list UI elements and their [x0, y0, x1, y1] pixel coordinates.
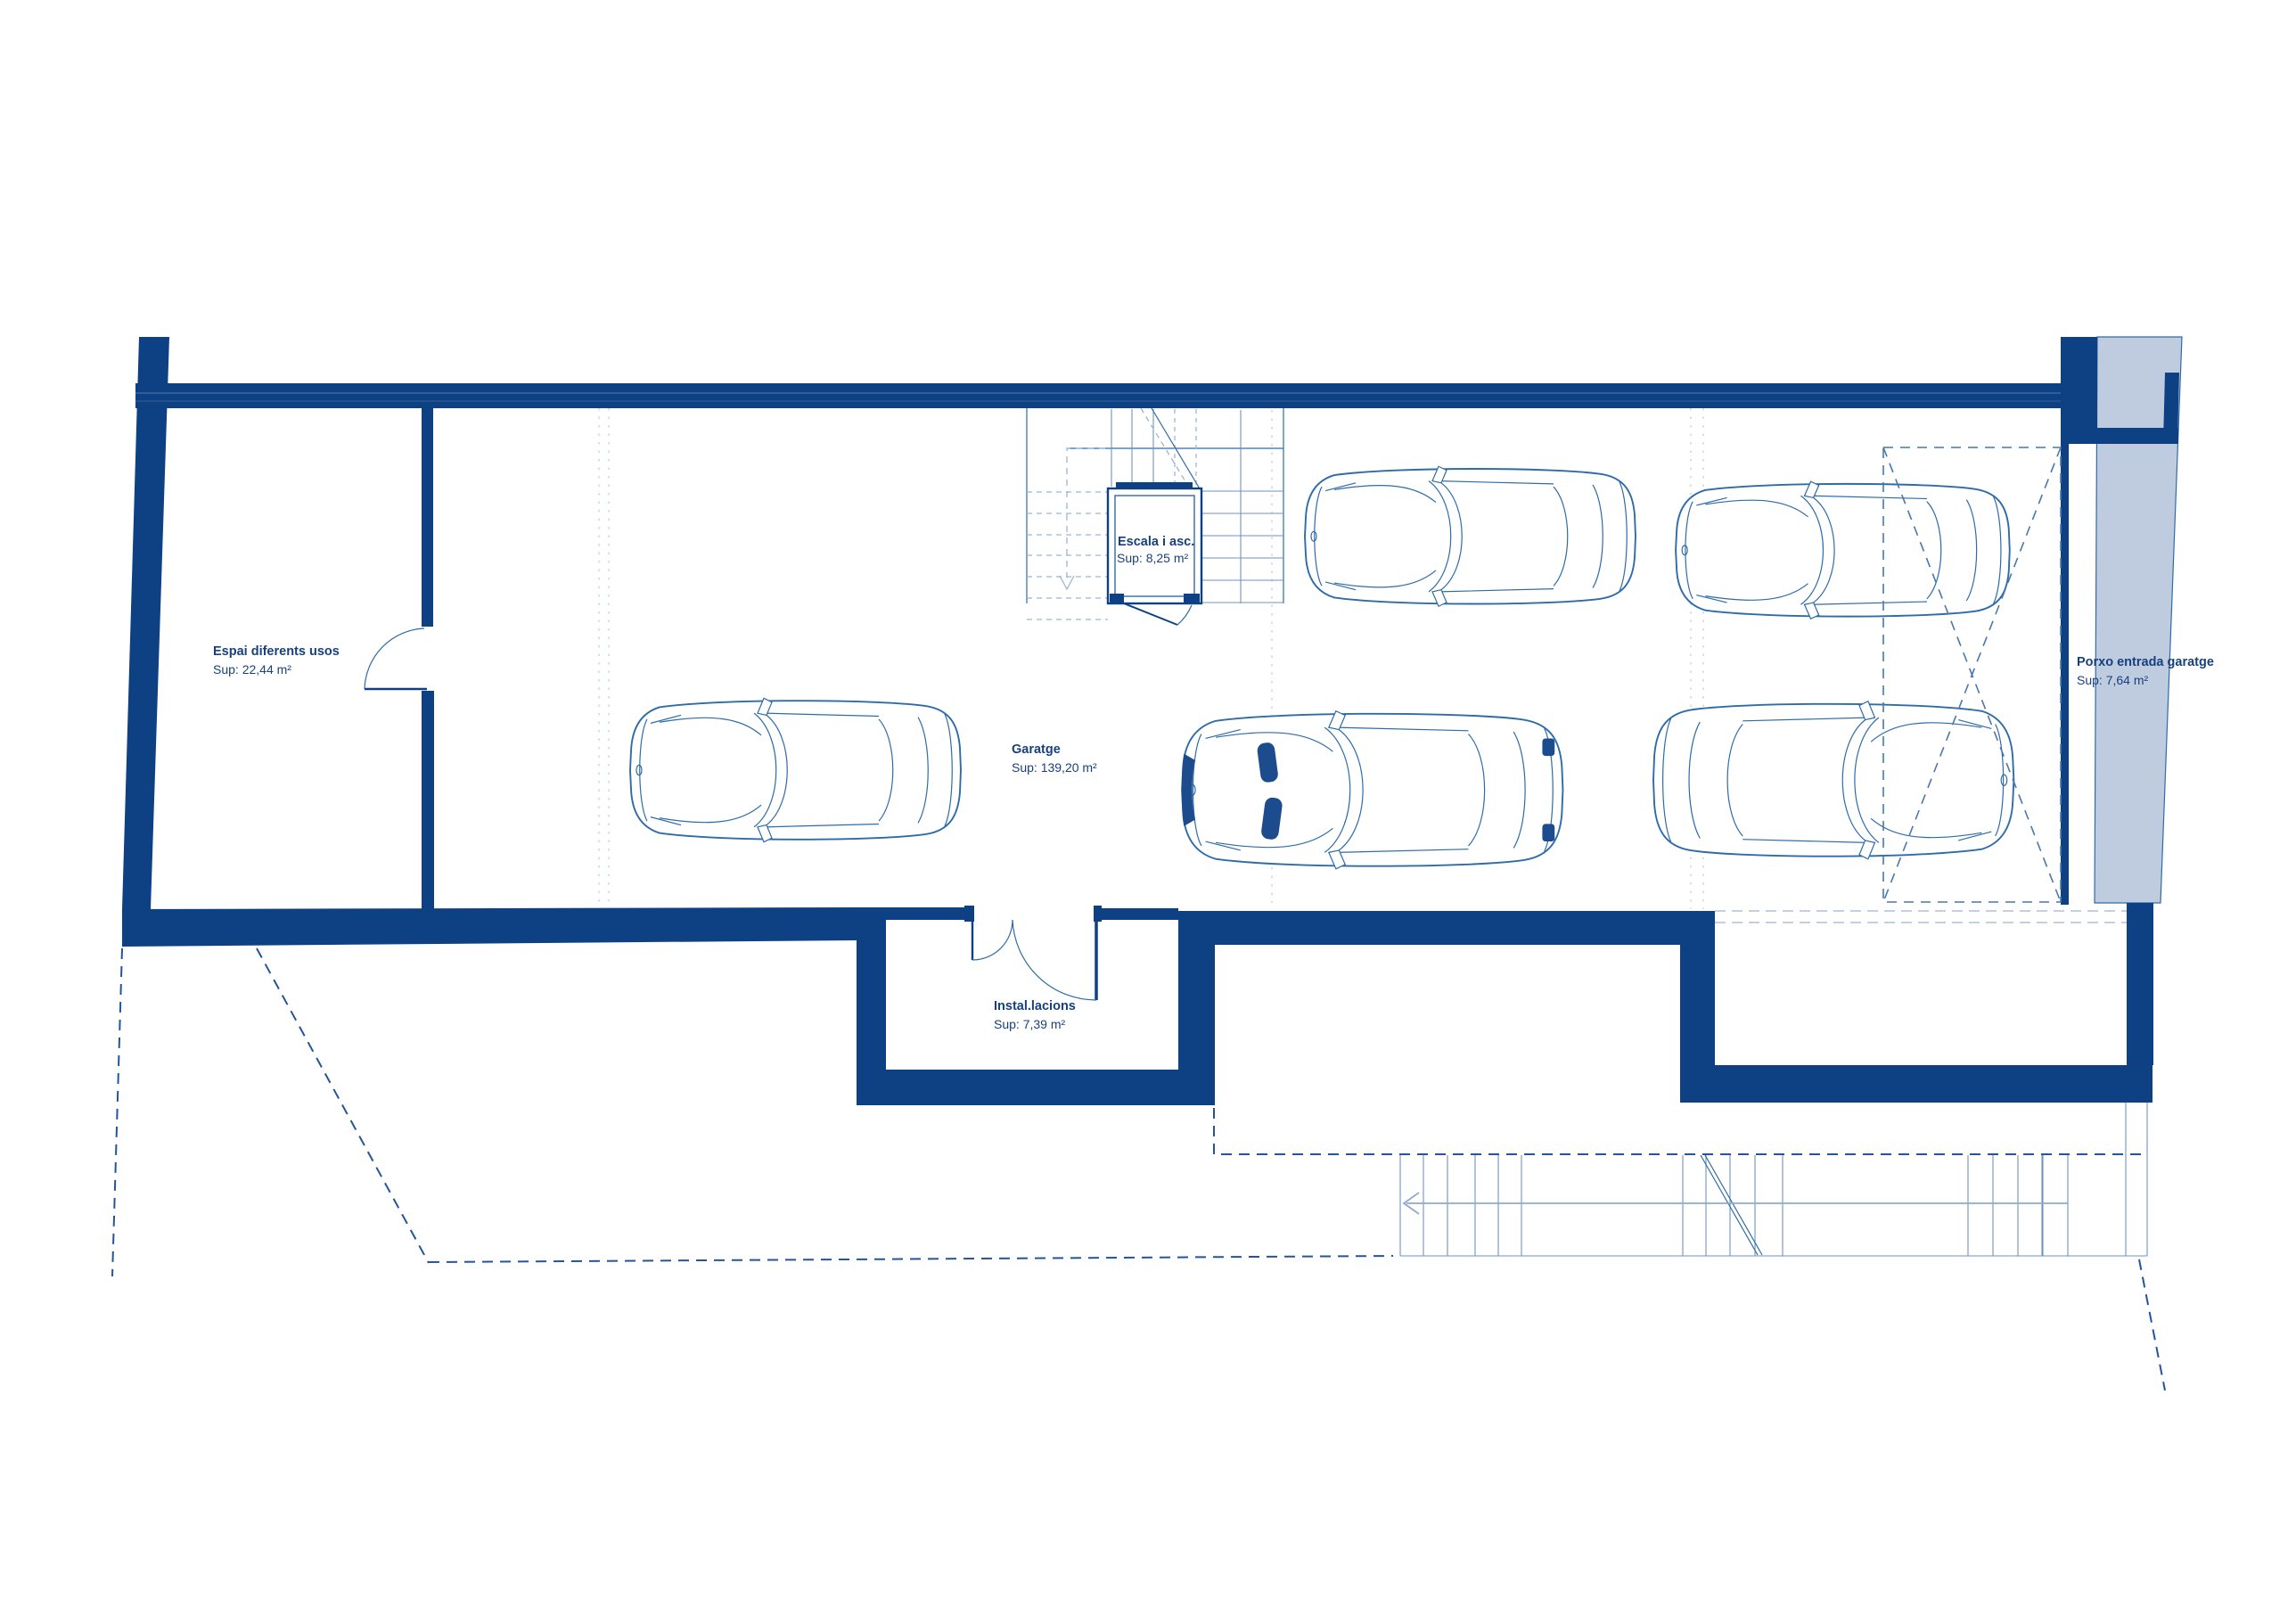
bottom-wall-left	[122, 907, 857, 947]
room-name-porxo: Porxo entrada garatge	[2077, 655, 2214, 669]
car-top-view-1	[1305, 466, 1636, 606]
room-name-espai: Espai diferents usos	[213, 644, 340, 659]
car-top-view-4	[1182, 711, 1563, 869]
floor-plan-canvas: Espai diferents usos Sup: 22,44 m² Escal…	[0, 0, 2296, 1624]
entrance-ramp-steps	[1400, 1103, 2147, 1256]
right-wall-thin	[2061, 444, 2069, 905]
car-top-view-3	[630, 698, 961, 841]
partition-espai-upper	[422, 408, 433, 627]
bottom-wall-mid	[1215, 911, 1680, 945]
door-installacions	[972, 920, 1096, 1000]
stair-direction-arrow	[1060, 448, 1105, 589]
property-boundary-dashed	[112, 948, 2165, 1390]
garage-door-opening-dashes	[1715, 911, 2127, 923]
room-name-garatge: Garatge	[1012, 742, 1061, 757]
elevator-door	[1124, 603, 1192, 625]
room-area-installacions: Sup: 7,39 m²	[994, 1017, 1065, 1031]
partition-espai-lower	[422, 691, 434, 909]
floor-plan-page: Espai diferents usos Sup: 22,44 m² Escal…	[0, 0, 2296, 1624]
installacions-right-wall	[1178, 911, 1215, 1102]
room-area-garatge: Sup: 139,20 m²	[1012, 760, 1097, 775]
installacions-bottom-wall	[857, 1070, 1215, 1105]
car-top-view-5	[1653, 701, 2013, 859]
room-area-escala: Sup: 8,25 m²	[1117, 551, 1188, 565]
cars	[630, 466, 2013, 869]
porch-side-wall	[2127, 903, 2153, 1065]
room-name-escala: Escala i asc.	[1118, 535, 1194, 549]
room-area-porxo: Sup: 7,64 m²	[2077, 673, 2148, 687]
room-area-espai: Sup: 22,44 m²	[213, 662, 291, 677]
step-down-wall	[1680, 911, 1715, 1103]
bottom-wall-right	[1715, 1065, 2152, 1103]
left-wall	[122, 337, 169, 909]
room-label-garatge: Garatge Sup: 139,20 m²	[1012, 742, 1097, 775]
room-label-espai: Espai diferents usos Sup: 22,44 m²	[213, 644, 340, 677]
room-name-installacions: Instal.lacions	[994, 999, 1076, 1013]
car-top-view-2	[1676, 481, 2010, 619]
top-wall	[135, 383, 2061, 408]
door-espai	[365, 628, 427, 689]
room-label-installacions: Instal.lacions Sup: 7,39 m²	[994, 999, 1076, 1031]
